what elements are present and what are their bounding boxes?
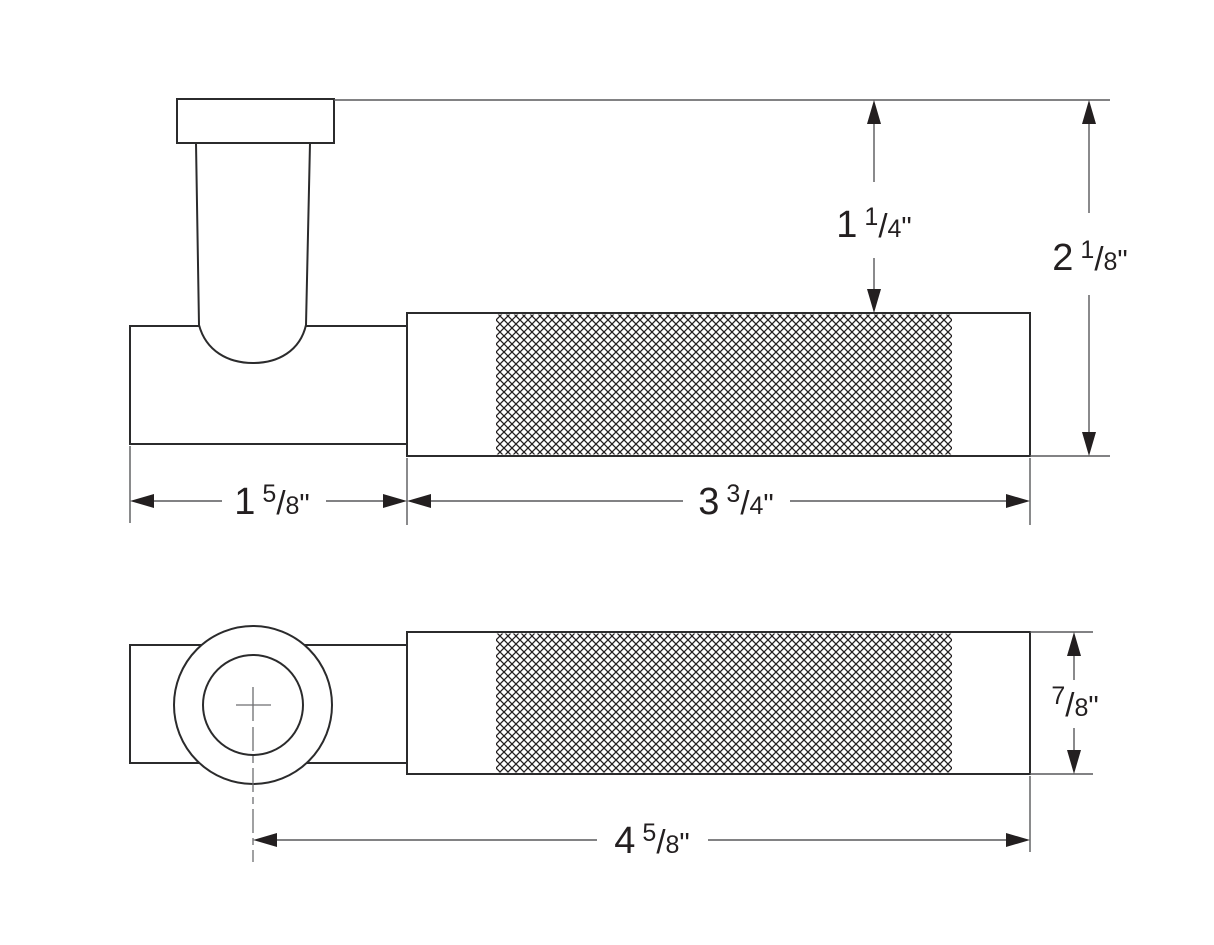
dim-label-rose-section: 15/8" xyxy=(234,480,309,523)
arrow-down-icon xyxy=(1067,750,1081,774)
dim-label-grip-section: 33/4" xyxy=(698,480,773,523)
arrow-left-icon xyxy=(407,494,431,508)
side-stem xyxy=(196,143,310,363)
dim-lever-diameter: 7/8" xyxy=(1051,632,1098,774)
arrow-up-icon xyxy=(1082,100,1096,124)
dim-label-lever-diameter: 7/8" xyxy=(1051,682,1098,723)
front-knurl-texture xyxy=(496,634,952,773)
side-knurl-texture xyxy=(496,315,952,455)
side-view xyxy=(130,99,1030,456)
dim-label-overall-length: 45/8" xyxy=(614,819,689,862)
arrow-left-icon xyxy=(253,833,277,847)
dim-label-knurl-to-top: 11/4" xyxy=(836,203,911,246)
arrow-right-icon xyxy=(383,494,407,508)
dim-rose-section: 15/8" xyxy=(130,480,407,523)
side-mount-cap xyxy=(177,99,334,143)
dim-knurl-to-top: 11/4" xyxy=(836,100,911,313)
arrow-up-icon xyxy=(1067,632,1081,656)
arrow-down-icon xyxy=(1082,432,1096,456)
arrow-left-icon xyxy=(130,494,154,508)
arrow-up-icon xyxy=(867,100,881,124)
dim-overall-height: 21/8" xyxy=(1052,100,1127,456)
arrow-right-icon xyxy=(1006,833,1030,847)
front-view xyxy=(130,626,1030,862)
dim-grip-section: 33/4" xyxy=(407,480,1030,523)
lever-handle-drawing: 11/4" 21/8" 15/8" 33/4" 7/8" 45/8" xyxy=(0,0,1214,945)
dim-label-overall-height: 21/8" xyxy=(1052,236,1127,279)
dim-overall-length: 45/8" xyxy=(253,819,1030,862)
arrow-right-icon xyxy=(1006,494,1030,508)
arrow-down-icon xyxy=(867,289,881,313)
dimension-drawing: 11/4" 21/8" 15/8" 33/4" 7/8" 45/8" xyxy=(0,0,1214,945)
